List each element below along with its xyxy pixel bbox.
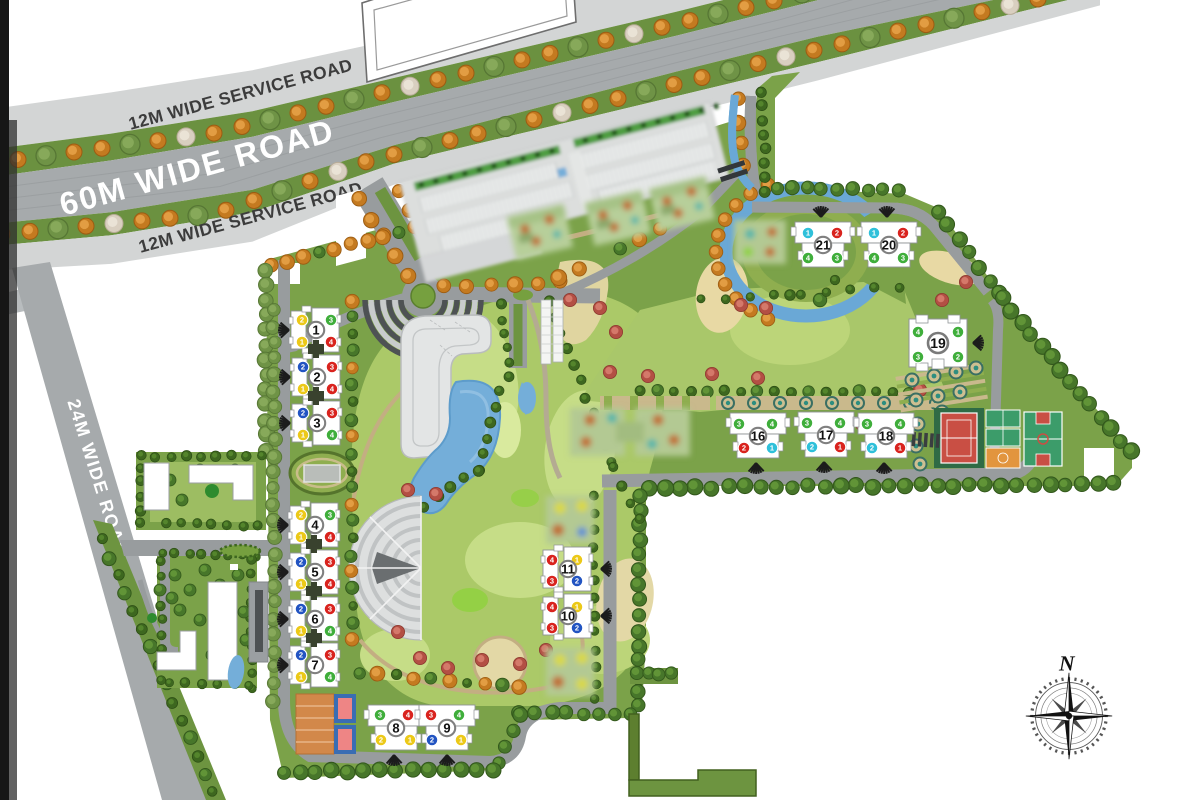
svg-text:2: 2 [742,444,746,453]
svg-text:21: 21 [816,238,830,253]
svg-text:3: 3 [328,605,332,614]
svg-text:N: N [1058,652,1076,676]
svg-text:1: 1 [301,385,305,394]
svg-text:3: 3 [805,419,809,428]
svg-text:3: 3 [330,409,334,418]
svg-text:1: 1 [770,444,774,453]
svg-text:1: 1 [956,328,960,337]
svg-text:2: 2 [299,651,303,660]
svg-text:1: 1 [806,229,810,238]
svg-text:3: 3 [330,363,334,372]
svg-text:8: 8 [392,721,399,736]
svg-text:1: 1 [299,533,303,542]
svg-text:1: 1 [838,443,842,452]
svg-text:16: 16 [751,429,765,444]
svg-text:3: 3 [328,511,332,520]
svg-text:2: 2 [901,229,905,238]
svg-text:1: 1 [459,736,463,745]
svg-text:3: 3 [329,316,333,325]
svg-text:1: 1 [299,580,303,589]
svg-text:1: 1 [898,444,902,453]
svg-text:6: 6 [311,612,318,627]
svg-text:2: 2 [430,736,434,745]
svg-text:2: 2 [313,370,320,385]
svg-text:3: 3 [550,577,554,586]
svg-text:10: 10 [561,609,575,624]
svg-text:3: 3 [378,711,382,720]
svg-text:2: 2 [301,363,305,372]
svg-text:2: 2 [575,624,579,633]
svg-text:1: 1 [299,627,303,636]
svg-text:9: 9 [443,721,450,736]
svg-text:2: 2 [300,316,304,325]
svg-text:3: 3 [429,711,433,720]
svg-text:1: 1 [408,736,412,745]
svg-text:3: 3 [901,254,905,263]
svg-text:1: 1 [301,431,305,440]
svg-text:20: 20 [882,238,896,253]
svg-text:2: 2 [299,511,303,520]
svg-text:1: 1 [872,229,876,238]
svg-text:2: 2 [575,577,579,586]
svg-text:2: 2 [299,605,303,614]
svg-text:4: 4 [311,518,319,533]
svg-text:1: 1 [575,556,579,565]
svg-text:3: 3 [328,651,332,660]
svg-text:5: 5 [311,565,318,580]
svg-text:3: 3 [550,624,554,633]
svg-text:3: 3 [313,416,320,431]
svg-text:18: 18 [879,429,893,444]
svg-text:2: 2 [299,558,303,567]
svg-text:1: 1 [300,338,304,347]
svg-text:2: 2 [870,444,874,453]
svg-text:3: 3 [328,558,332,567]
svg-text:19: 19 [930,335,946,351]
svg-text:1: 1 [299,673,303,682]
svg-text:7: 7 [311,658,318,673]
svg-text:2: 2 [301,409,305,418]
svg-text:2: 2 [956,353,960,362]
svg-text:2: 2 [810,443,814,452]
svg-text:3: 3 [835,254,839,263]
svg-text:11: 11 [561,562,575,577]
svg-text:3: 3 [916,353,920,362]
svg-text:1: 1 [575,603,579,612]
svg-text:17: 17 [819,428,833,443]
svg-text:2: 2 [835,229,839,238]
svg-text:2: 2 [379,736,383,745]
svg-text:3: 3 [737,420,741,429]
svg-text:3: 3 [865,420,869,429]
svg-text:1: 1 [312,323,319,338]
